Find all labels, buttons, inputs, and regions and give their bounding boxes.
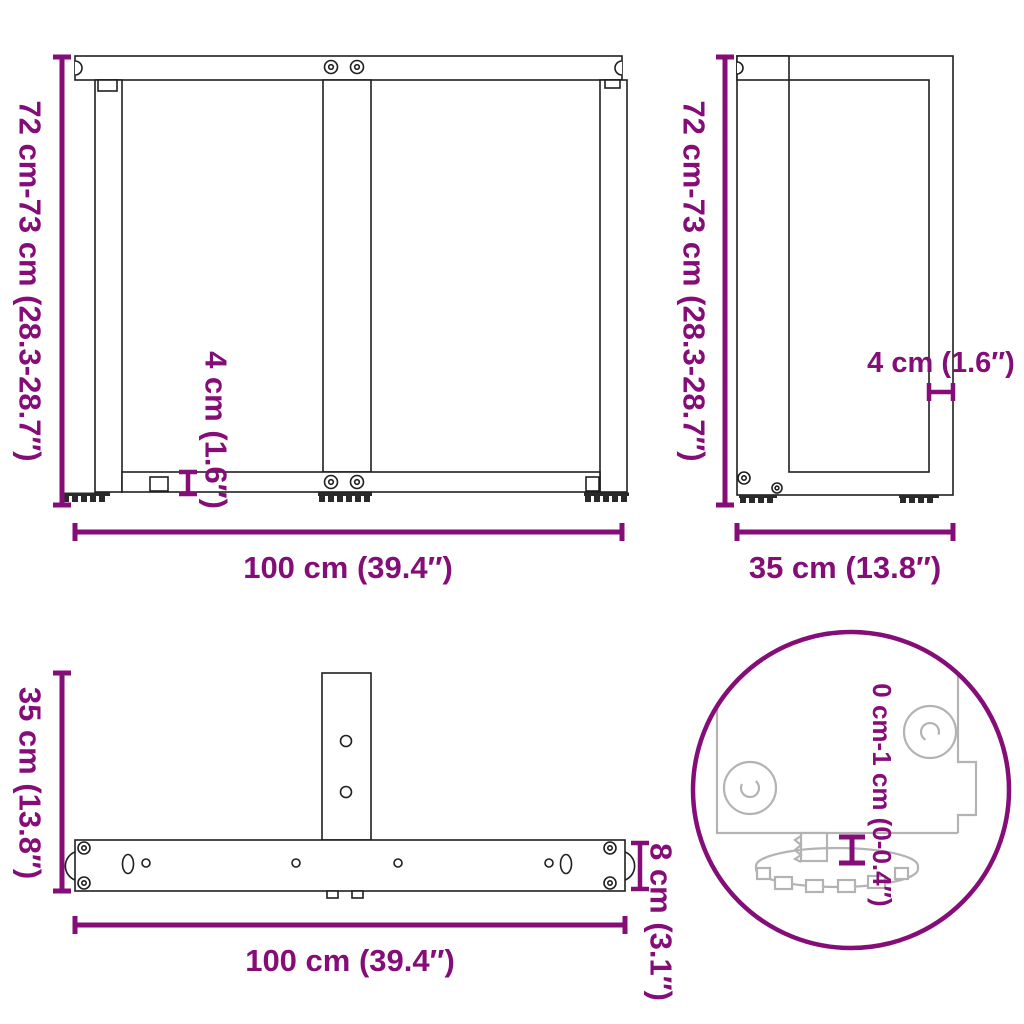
- product-dimension-diagram: 72 cm-73 cm (28.3-28.7″) 100 cm (39.4″) …: [0, 0, 1024, 1024]
- side-top-bracket: [737, 56, 789, 80]
- front-center-post: [323, 80, 371, 472]
- front-top-rail-right-notch: [615, 61, 622, 75]
- side-view: 72 cm-73 cm (28.3-28.7″) 35 cm (13.8″) 4…: [677, 56, 1015, 585]
- top-center-beam: [322, 673, 371, 840]
- top-left-foot-bulge: [65, 852, 75, 880]
- front-left-leg: [95, 80, 122, 492]
- top-bottom-tab: [327, 891, 338, 898]
- front-rail-thickness-label: 4 cm (1.6″): [199, 351, 234, 509]
- front-top-rail: [75, 56, 622, 80]
- detail-adjustment-marker: [839, 837, 865, 863]
- detail-foot-adjustment-label: 0 cm-1 cm (0-0.4″): [867, 683, 897, 906]
- top-depth-label: 35 cm (13.8″): [13, 687, 48, 879]
- front-center-foot: [318, 493, 372, 503]
- front-bottom-rail: [122, 472, 600, 492]
- side-height-dimension-line: [716, 57, 734, 505]
- front-top-rail-left-notch: [75, 61, 82, 75]
- front-height-label: 72 cm-73 cm (28.3-28.7″): [13, 100, 48, 461]
- front-left-foot: [62, 493, 110, 503]
- side-height-label: 72 cm-73 cm (28.3-28.7″): [677, 100, 712, 461]
- top-bottom-tab: [352, 891, 363, 898]
- front-right-foot: [584, 493, 629, 503]
- front-left-leg-clip: [98, 80, 117, 91]
- front-width-dimension-line: [75, 523, 622, 541]
- front-view: 72 cm-73 cm (28.3-28.7″) 100 cm (39.4″) …: [13, 56, 630, 585]
- side-depth-label: 35 cm (13.8″): [749, 550, 941, 585]
- top-cross-bar: [75, 840, 625, 891]
- side-bracket-notch: [737, 62, 743, 74]
- side-post-thickness-label: 4 cm (1.6″): [867, 347, 1015, 379]
- front-bottom-rail-right-clip: [586, 477, 599, 491]
- side-outer-profile: [737, 56, 953, 495]
- detail-screw: [904, 706, 956, 758]
- top-bar-width-label: 8 cm (3.1″): [644, 843, 679, 1001]
- top-view: 35 cm (13.8″) 100 cm (39.4″) 8 cm (3.1″): [13, 673, 679, 1001]
- side-depth-dimension-line: [737, 523, 953, 541]
- detail-screw: [724, 762, 776, 814]
- side-left-foot: [739, 495, 777, 503]
- top-right-foot-bulge: [625, 852, 635, 880]
- diagram-canvas: 72 cm-73 cm (28.3-28.7″) 100 cm (39.4″) …: [0, 0, 1024, 1024]
- front-width-label: 100 cm (39.4″): [243, 550, 453, 585]
- detail-view: 0 cm-1 cm (0-0.4″): [693, 632, 1009, 948]
- top-width-label: 100 cm (39.4″): [245, 943, 455, 978]
- front-right-leg-clip: [605, 80, 620, 88]
- front-height-dimension-line: [53, 57, 71, 505]
- front-right-leg: [600, 80, 627, 492]
- front-bottom-rail-left-clip: [150, 477, 168, 491]
- side-right-foot: [899, 495, 939, 503]
- top-width-dimension-line: [75, 916, 625, 934]
